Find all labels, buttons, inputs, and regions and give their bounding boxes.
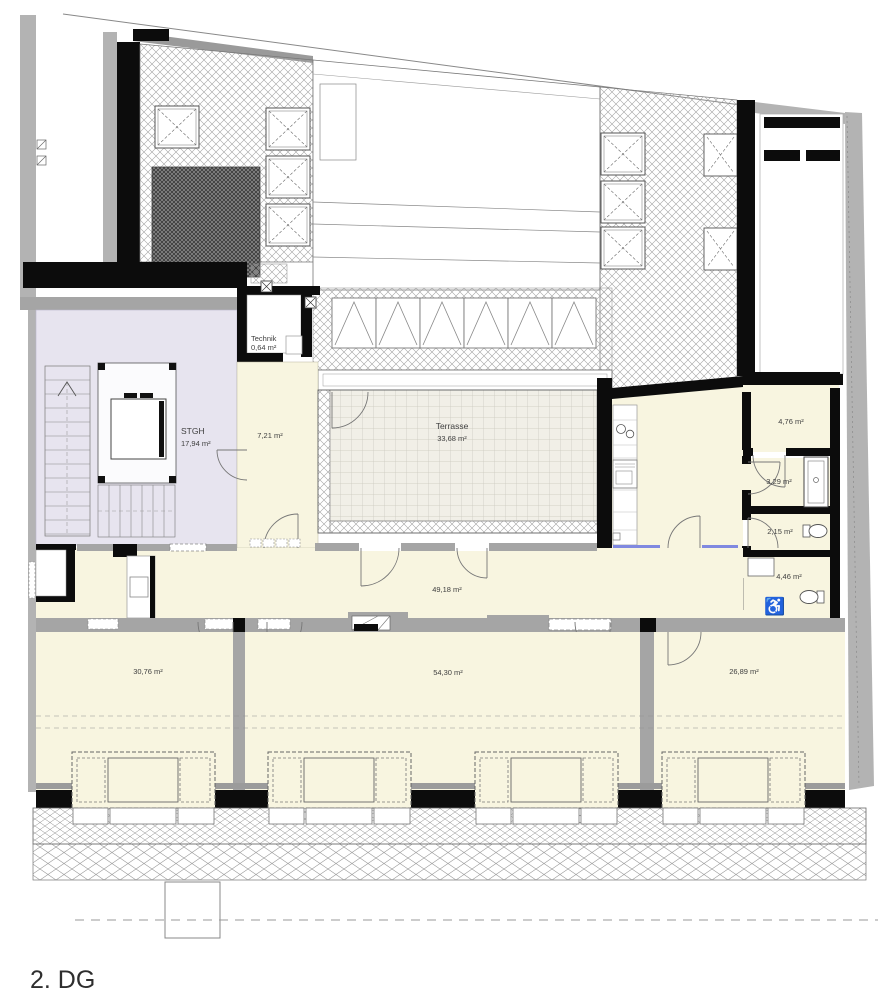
wall-black xyxy=(597,378,612,548)
kitchen-counter xyxy=(613,405,637,545)
skylight-icon xyxy=(266,204,310,246)
technik-name: Technik xyxy=(251,334,277,343)
stairwell-name: STGH xyxy=(181,426,205,436)
dusche-area: 3,29 m² xyxy=(766,477,792,486)
dormer-window xyxy=(72,752,215,824)
accessible-icon: ♿ xyxy=(764,596,785,616)
wc-icon xyxy=(800,591,824,604)
wc-icon xyxy=(803,525,827,538)
room-divider xyxy=(640,632,654,790)
flur-area: 7,21 m² xyxy=(257,431,283,440)
roof-center xyxy=(313,60,600,290)
wohnkueche-area: 49,18 m² xyxy=(432,585,462,594)
skylight-icon xyxy=(266,156,310,198)
terrace-canopy xyxy=(318,370,612,390)
wall-black xyxy=(23,262,247,288)
roof-louver-band xyxy=(313,288,612,390)
roof-left xyxy=(20,44,313,310)
skylight-icon xyxy=(155,106,199,148)
shower xyxy=(804,457,828,507)
bad-area: 4,46 m² xyxy=(776,572,802,581)
stairwell xyxy=(28,288,247,548)
downpipe-box xyxy=(165,882,220,938)
eaves-band xyxy=(33,844,866,880)
kitchen-area xyxy=(612,376,743,550)
skylight-icon xyxy=(601,227,645,269)
room-divider xyxy=(233,632,245,790)
terrace xyxy=(318,378,612,548)
wc-area: 2,15 m² xyxy=(767,527,793,536)
dormer-window xyxy=(475,752,618,824)
void xyxy=(36,550,66,596)
left-wall-symbol xyxy=(37,140,46,165)
dormer-window xyxy=(268,752,411,824)
washbasin xyxy=(748,558,774,576)
technik-area: 0,64 m² xyxy=(251,343,277,352)
floorplan-drawing: STGH 17,94 m² Technik 0,64 m² 7,21 m² Te… xyxy=(0,0,880,1001)
roof-right xyxy=(600,87,843,390)
wall-gray xyxy=(20,297,247,310)
terrace-area: 33,68 m² xyxy=(437,434,467,443)
damper-symbol-icon xyxy=(261,281,272,292)
skylight-icon xyxy=(601,181,645,223)
stairwell-area: 17,94 m² xyxy=(181,439,211,448)
zimmer-rechts-area: 26,89 m² xyxy=(729,667,759,676)
elevator xyxy=(98,363,176,483)
skylight-icon xyxy=(266,108,310,150)
zimmer-links-area: 30,76 m² xyxy=(133,667,163,676)
floor-label: 2. DG xyxy=(30,966,95,994)
wall-black xyxy=(737,100,755,376)
sliding-opening xyxy=(549,619,611,630)
terrace-name: Terrasse xyxy=(436,421,469,431)
right-neighbor-wall xyxy=(845,112,874,790)
dormer-window xyxy=(662,752,805,824)
skylight-icon xyxy=(601,133,645,175)
damper-symbol-icon xyxy=(305,297,316,308)
abstellraum-area: 4,76 m² xyxy=(778,417,804,426)
zimmer-mitte-area: 54,30 m² xyxy=(433,668,463,677)
floorplan-page: STGH 17,94 m² Technik 0,64 m² 7,21 m² Te… xyxy=(0,0,880,1001)
